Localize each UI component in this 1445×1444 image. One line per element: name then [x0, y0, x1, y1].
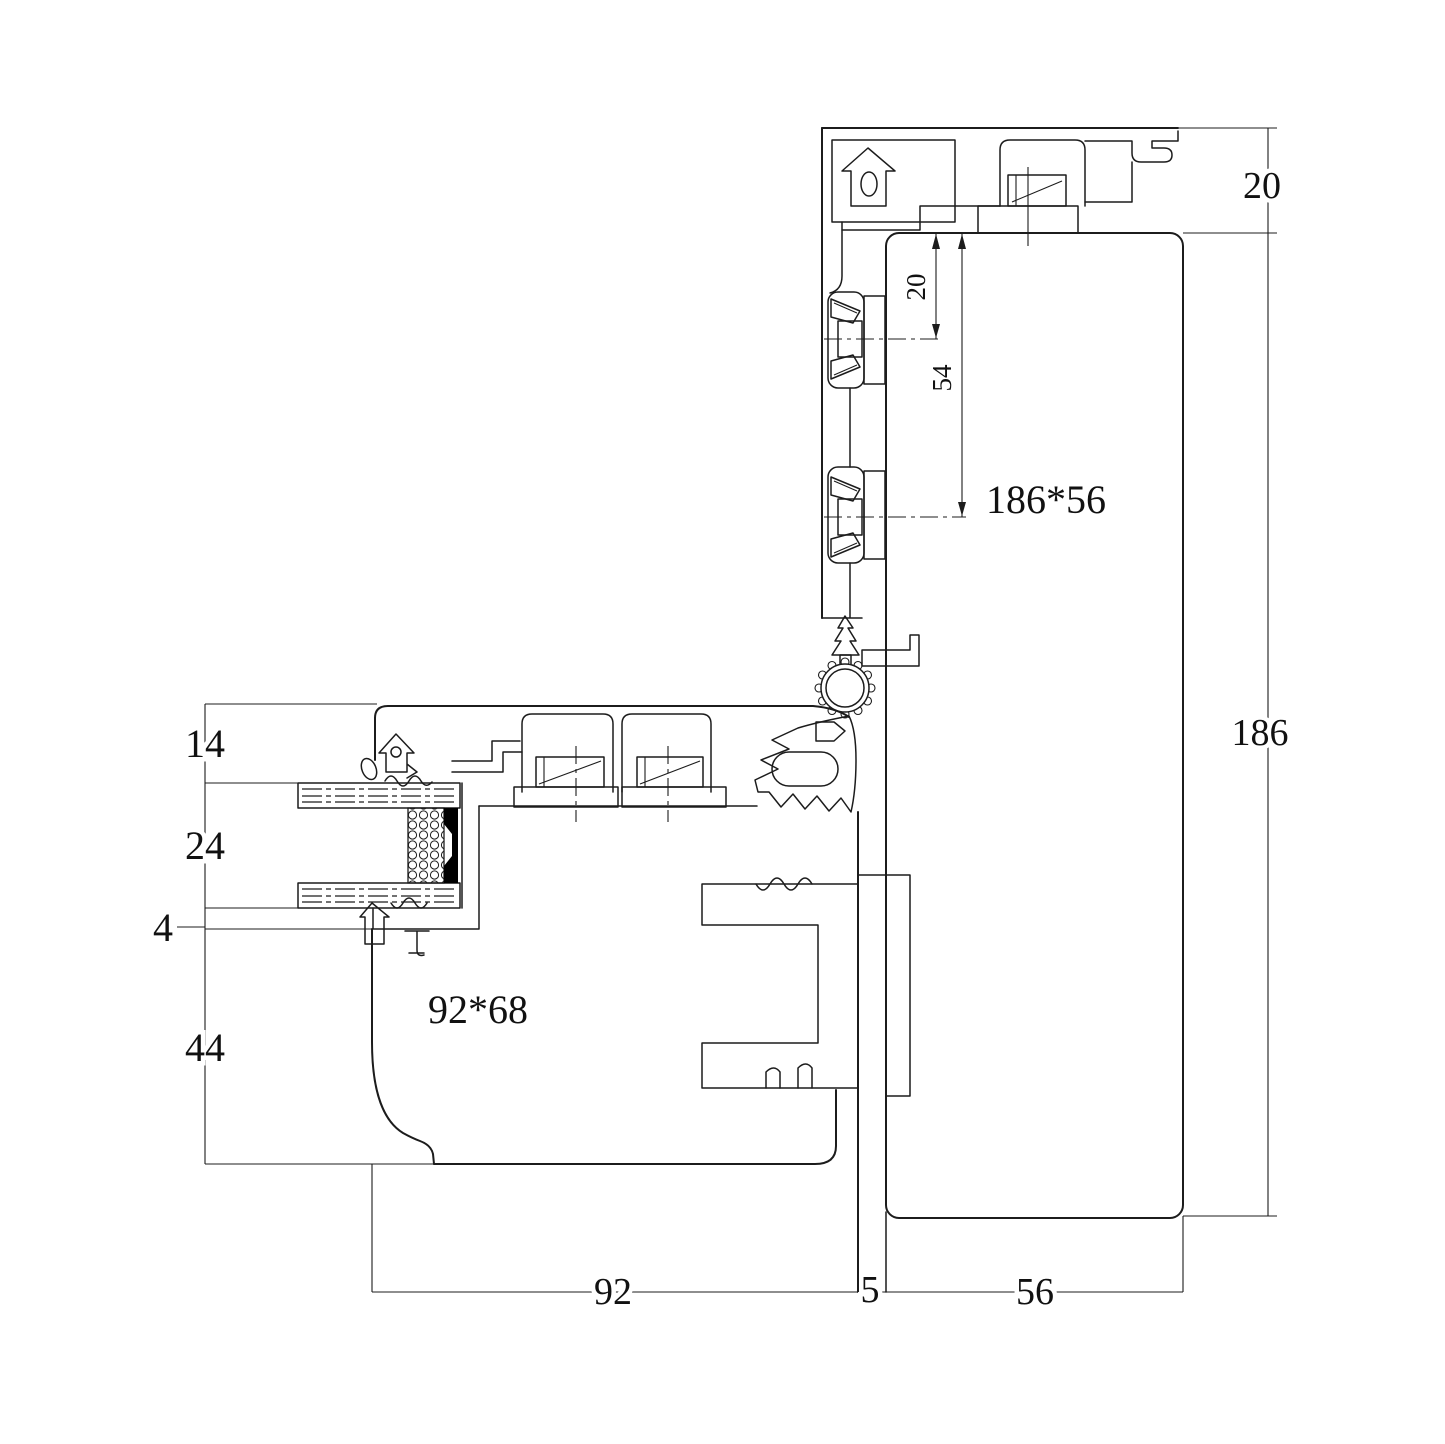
head-roller-detail — [1012, 175, 1062, 206]
dim-left-4-label: 4 — [153, 905, 173, 950]
gasket-outer-circle — [821, 664, 869, 712]
corner-tree-clip — [832, 616, 859, 655]
head-roller — [1008, 175, 1066, 206]
glass-pane-top-hatch — [302, 789, 456, 802]
sash-body-left-edge — [372, 929, 434, 1164]
label-horizontal-profile: 92*68 — [428, 987, 528, 1032]
glass-unit — [298, 783, 460, 908]
sash-top-edge — [375, 706, 849, 718]
dim-inner-lower-label: 54 — [927, 364, 957, 392]
head-inner-wall — [830, 222, 842, 293]
dim-bottom-92-label: 92 — [594, 1271, 632, 1313]
bottom-t-clip — [405, 931, 429, 955]
head-chamber — [1000, 140, 1085, 206]
head-bottom-left-edge — [842, 206, 1000, 230]
gasket-oval-hole — [772, 752, 838, 786]
technical-drawing: 20 186 20 54 14 24 4 44 92 5 56 186*56 9… — [0, 0, 1445, 1444]
gasket-arrow-clip — [816, 722, 845, 741]
sash-roller-2-detail — [640, 757, 700, 787]
fastener-clip-hole — [861, 172, 877, 196]
sash-roller-1-detail — [539, 757, 601, 787]
ext-lines-right — [1178, 128, 1277, 1216]
fastener-clip — [842, 148, 895, 206]
head-hook — [1085, 131, 1178, 162]
dim-right-main-label: 186 — [1232, 712, 1289, 754]
roller-plate-2 — [864, 471, 885, 559]
dim-left-44-label: 44 — [185, 1025, 225, 1070]
clamp-feet — [766, 1064, 812, 1088]
spacer-honeycomb — [408, 808, 444, 883]
dim-left-14-label: 14 — [185, 721, 225, 766]
corner-gasket — [815, 658, 875, 718]
dim-bottom-5-label: 5 — [861, 1269, 880, 1311]
glass-pane-bottom-hatch — [302, 889, 456, 902]
sash-bottom-edge — [434, 1090, 836, 1164]
dim-inner-upper-label: 20 — [901, 274, 931, 301]
dim-right-top-label: 20 — [1243, 165, 1281, 207]
roller-plate-1 — [864, 296, 885, 384]
ext-lines-left — [177, 704, 434, 1164]
corner-serrated-gasket — [755, 716, 856, 812]
cad-canvas: 20 186 20 54 14 24 4 44 92 5 56 186*56 9… — [0, 0, 1445, 1444]
mullion-chamber-2 — [828, 467, 864, 563]
sash-step-bend — [452, 741, 522, 772]
glazing-clip-hole — [391, 747, 401, 757]
head-bottom-right-edge — [1085, 162, 1132, 202]
dim-left-24-label: 24 — [185, 823, 225, 868]
teardrop-gasket — [358, 756, 379, 782]
bottom-squiggle — [391, 898, 427, 908]
dim-bottom-56-label: 56 — [1016, 1271, 1054, 1313]
clamp-bracket — [702, 884, 858, 1088]
label-vertical-profile: 186*56 — [986, 477, 1106, 522]
sealant-black — [444, 808, 458, 883]
sash-chamber-2 — [622, 714, 711, 792]
bottom-clip — [360, 903, 389, 944]
sash-plate-1 — [514, 787, 618, 807]
